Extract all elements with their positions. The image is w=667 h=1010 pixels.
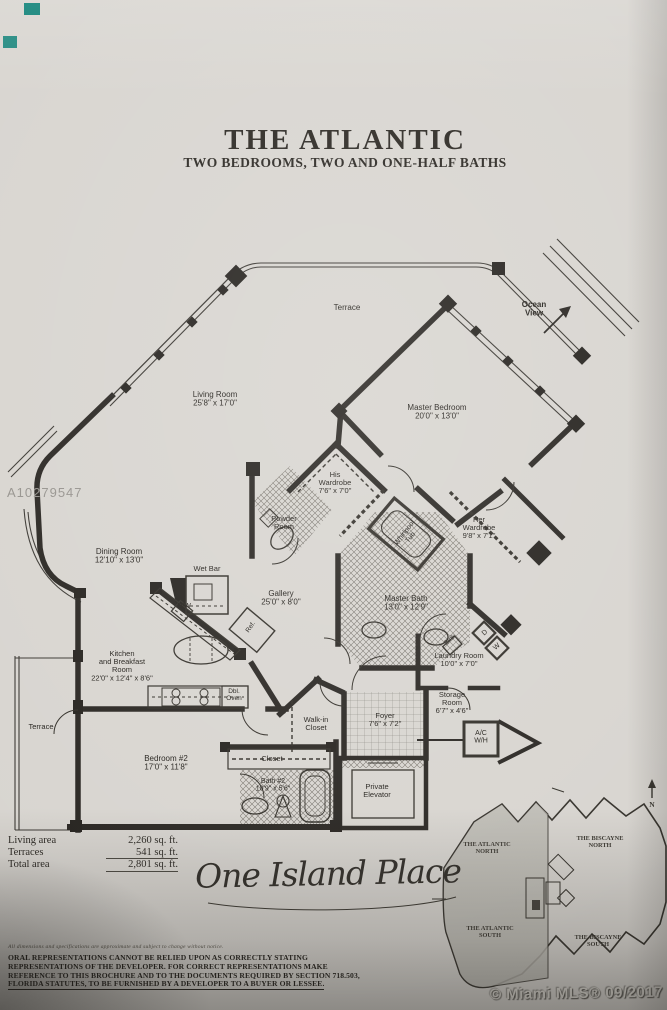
walls — [37, 304, 576, 830]
his-wardrobe-label: HisWardrobe7'6" x 7'0" — [319, 470, 352, 495]
master-bedroom-label: Master Bedroom20'0" x 13'0" — [407, 403, 466, 421]
kitchen-label: Kitchenand BreakfastRoom22'0" x 12'4" x … — [91, 649, 153, 682]
floorplan-photo: TerraceOceanViewLiving Room25'8" x 17'0"… — [0, 0, 667, 1010]
dimensions-note: All dimensions and specifications are ap… — [8, 944, 368, 950]
wet-bar-label: Wet Bar — [194, 564, 221, 573]
refrigerator-label: Ref. — [244, 620, 257, 634]
scan-artifact-mark — [24, 3, 40, 15]
laundry-room-label: Laundry Room10'0" x 7'0" — [434, 651, 483, 668]
area-value: 2,260 sq. ft. — [106, 835, 178, 847]
bedroom-2-label: Bedroom #217'0" x 11'8" — [144, 754, 188, 772]
dishwasher-label: D/W — [177, 603, 191, 610]
logo-flourish — [208, 897, 456, 910]
storage-room-label: StorageRoom6'7" x 4'6" — [436, 690, 469, 715]
terrace-railings — [8, 239, 639, 830]
gallery-label: Gallery25'0" x 8'0" — [261, 589, 301, 607]
terrace-top-label: Terrace — [334, 303, 361, 312]
powder-room-label: PowderRoom — [271, 514, 297, 531]
terrace-left-label: Terrace — [28, 722, 53, 731]
walk-in-closet-label: Walk-inCloset — [304, 715, 329, 732]
wall-corner-blocks — [70, 262, 591, 832]
living-room-label: Living Room25'8" x 17'0" — [193, 390, 238, 408]
private-elevator-label: PrivateElevator — [363, 782, 391, 799]
ocean-view-label: OceanView — [522, 300, 547, 318]
room-labels: TerraceOceanViewLiving Room25'8" x 17'0"… — [28, 300, 546, 799]
biscayne-north-label: THE BISCAYNENORTH — [577, 835, 624, 849]
disclaimer-line: FLORIDA STATUTES, TO BE FURNISHED BY A D… — [8, 980, 324, 990]
area-label: Total area — [8, 859, 50, 872]
area-row-total: Total area 2,801 sq. ft. — [8, 859, 178, 872]
mls-credit-watermark: © Miami MLS® 09/2017 — [490, 984, 663, 1003]
plan-title: THE ATLANTIC — [22, 124, 667, 157]
closet-label: Closet — [261, 754, 283, 763]
listing-number-watermark: A10279547 — [7, 485, 83, 500]
area-label: Living area — [8, 835, 56, 847]
dbl-oven-label: Dbl.Oven — [226, 688, 242, 702]
dryer-label: D — [481, 629, 489, 638]
area-label: Terraces — [8, 847, 43, 860]
area-table: Living area 2,260 sq. ft. Terraces 541 s… — [8, 835, 178, 872]
plan-subtitle: TWO BEDROOMS, TWO AND ONE-HALF BATHS — [22, 155, 667, 171]
area-row-living: Living area 2,260 sq. ft. — [8, 835, 178, 847]
master-bath-label: Master Bath13'0" x 12'9" — [384, 594, 428, 612]
building-logo: One Island Place — [168, 851, 489, 897]
area-row-terraces: Terraces 541 sq. ft. — [8, 847, 178, 860]
ac-wh-label: A/CW/H — [474, 730, 488, 745]
scan-artifact-mark — [3, 36, 17, 48]
disclaimer-block: All dimensions and specifications are ap… — [8, 944, 368, 990]
compass-n-label: N — [649, 800, 655, 809]
dining-room-label: Dining Room12'10" x 13'0" — [95, 547, 143, 565]
washer-label: W — [492, 642, 502, 652]
